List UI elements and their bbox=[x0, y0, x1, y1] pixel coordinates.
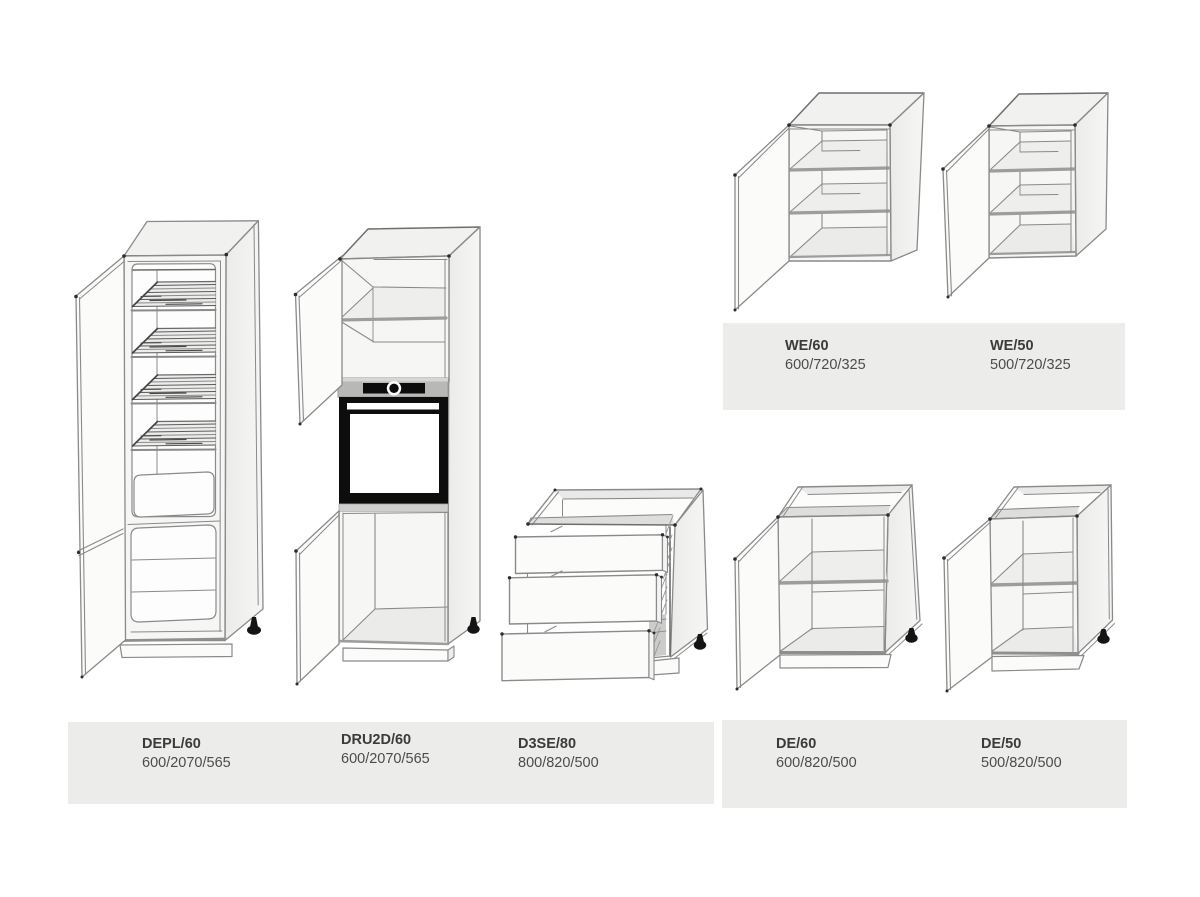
svg-text:DE/50: DE/50 bbox=[981, 736, 1021, 752]
svg-text:DEPL/60: DEPL/60 bbox=[142, 736, 201, 752]
svg-text:600/2070/565: 600/2070/565 bbox=[142, 755, 231, 771]
svg-text:D3SE/80: D3SE/80 bbox=[518, 736, 576, 752]
svg-text:600/2070/565: 600/2070/565 bbox=[341, 751, 430, 767]
svg-text:500/820/500: 500/820/500 bbox=[981, 755, 1062, 771]
svg-text:WE/60: WE/60 bbox=[785, 338, 829, 354]
svg-text:800/820/500: 800/820/500 bbox=[518, 755, 599, 771]
svg-text:DRU2D/60: DRU2D/60 bbox=[341, 732, 411, 748]
svg-text:600/820/500: 600/820/500 bbox=[776, 755, 857, 771]
svg-text:DE/60: DE/60 bbox=[776, 736, 816, 752]
svg-text:WE/50: WE/50 bbox=[990, 338, 1034, 354]
svg-text:600/720/325: 600/720/325 bbox=[785, 357, 866, 373]
svg-text:500/720/325: 500/720/325 bbox=[990, 357, 1071, 373]
